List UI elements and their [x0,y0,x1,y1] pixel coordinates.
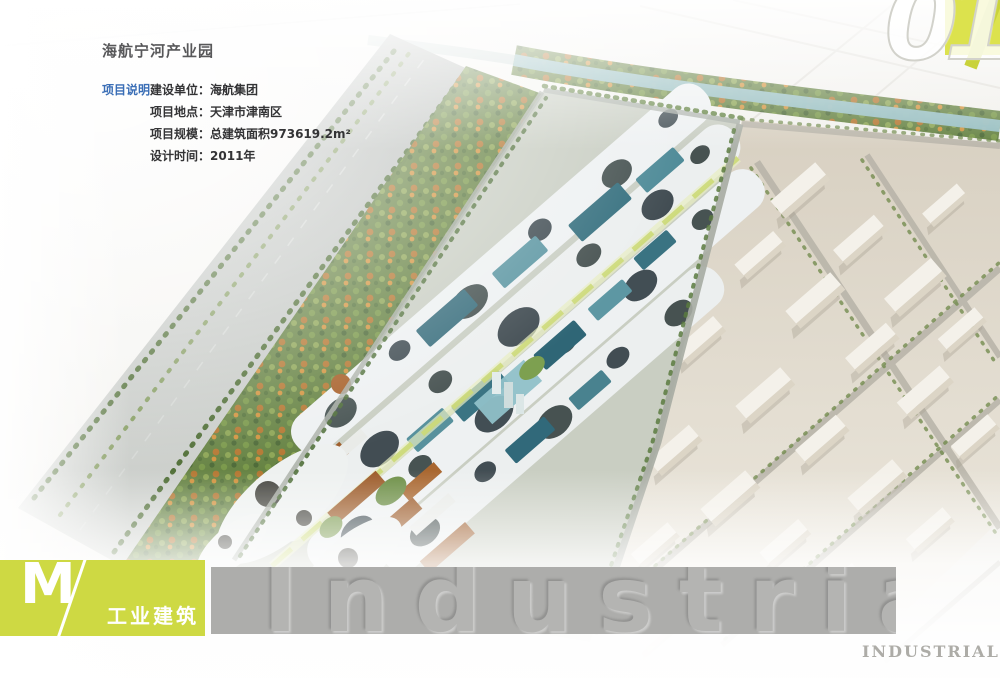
info-key: 设计时间： [150,149,210,163]
info-row-location: 项目地点：天津市津南区 [150,105,351,127]
project-info-block: 项目说明 建设单位：海航集团 项目地点：天津市津南区 项目规模：总建筑面积973… [102,83,351,171]
project-info-label: 项目说明 [102,83,150,171]
info-value: 海航集团 [210,83,258,97]
corner-label: INDUSTRIAL [862,642,1000,661]
watermark-text: Industrial [263,567,896,634]
info-row-owner: 建设单位：海航集团 [150,83,351,105]
info-key: 项目规模： [150,127,210,141]
presentation-page: 海航宁河产业园 项目说明 建设单位：海航集团 项目地点：天津市津南区 项目规模：… [0,0,1000,678]
chapter-number: 01 [884,0,1000,76]
info-key: 项目地点： [150,105,210,119]
section-tab: M 工业建筑 [0,560,205,636]
info-row-design-time: 设计时间：2011年 [150,149,351,171]
chapter-marker: 01 [820,0,1000,130]
info-value: 天津市津南区 [210,105,282,119]
watermark-band: Industrial [211,567,896,634]
info-value: 2011年 [210,149,255,163]
section-label: 工业建筑 [107,600,199,629]
page-title: 海航宁河产业园 [102,40,214,61]
info-row-scale: 项目规模：总建筑面积973619.2m² [150,127,351,149]
info-key: 建设单位： [150,83,210,97]
project-info-rows: 建设单位：海航集团 项目地点：天津市津南区 项目规模：总建筑面积973619.2… [150,83,351,171]
info-value: 总建筑面积973619.2m² [210,127,351,141]
